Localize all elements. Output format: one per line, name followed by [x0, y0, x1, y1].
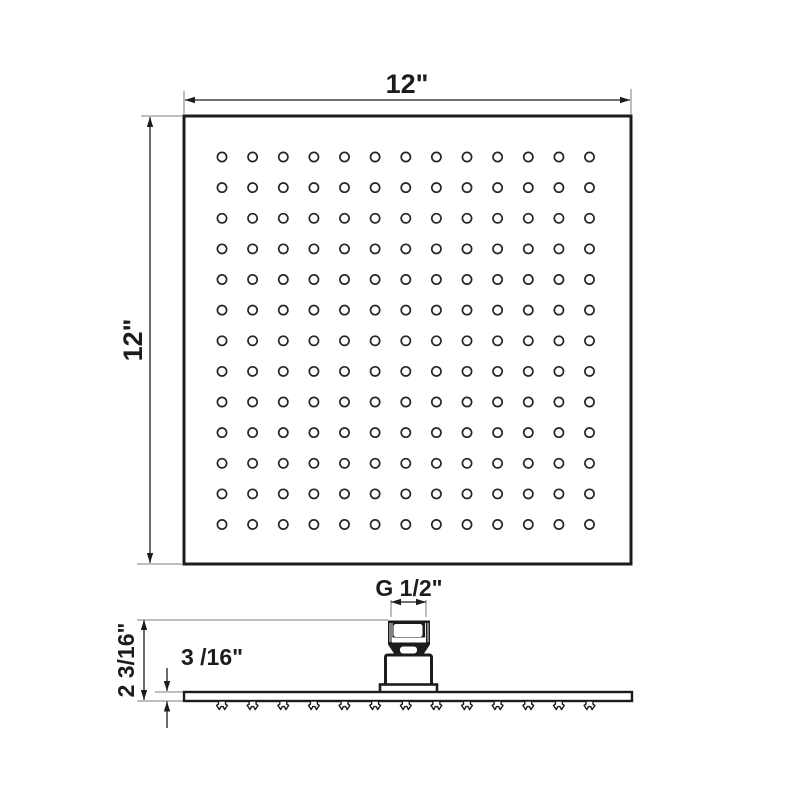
- swivel-lip: [400, 646, 418, 654]
- showerhead-plate: [184, 692, 632, 701]
- nozzle-hole: [554, 397, 563, 406]
- nozzle-hole: [340, 397, 349, 406]
- nozzle-hole: [279, 520, 288, 529]
- nozzle-hole: [371, 275, 380, 284]
- nut-top-face: [394, 624, 423, 637]
- nozzle-hole: [217, 397, 226, 406]
- nozzle: [217, 701, 228, 710]
- arrowhead-right: [620, 97, 630, 103]
- nozzle-hole: [401, 520, 410, 529]
- nozzle-hole: [432, 428, 441, 437]
- nozzle-hole: [279, 397, 288, 406]
- nozzle-hole: [248, 244, 257, 253]
- nozzle-hole: [554, 152, 563, 161]
- nozzle-hole: [585, 306, 594, 315]
- nozzle-hole: [217, 489, 226, 498]
- nozzle-hole: [401, 183, 410, 192]
- plate-thickness-label: 3 /16": [181, 644, 243, 670]
- nozzle-hole: [524, 275, 533, 284]
- arrowhead-down: [141, 690, 147, 700]
- nozzle-hole: [462, 459, 471, 468]
- nozzle-hole: [340, 367, 349, 376]
- nozzle-hole: [371, 367, 380, 376]
- nozzle-hole: [432, 244, 441, 253]
- nozzle-hole: [462, 367, 471, 376]
- nozzle-hole: [340, 214, 349, 223]
- nozzle-hole: [217, 152, 226, 161]
- nozzle-hole: [432, 520, 441, 529]
- nozzle-hole: [279, 428, 288, 437]
- dimension-thread: G 1/2": [375, 575, 442, 617]
- nozzle-hole: [401, 306, 410, 315]
- side-view: G 1/2" 2 3/16" 3 /16": [113, 575, 632, 728]
- nozzle-hole: [309, 183, 318, 192]
- nozzle: [339, 701, 350, 710]
- nozzle: [554, 701, 565, 710]
- nozzle-hole: [340, 183, 349, 192]
- nozzle-hole: [432, 397, 441, 406]
- nozzle-hole: [217, 306, 226, 315]
- nozzle-hole: [371, 489, 380, 498]
- nozzle-hole: [401, 397, 410, 406]
- nozzle-hole: [493, 214, 502, 223]
- nozzle-hole: [524, 336, 533, 345]
- nozzle-hole: [217, 428, 226, 437]
- nozzle-hole: [585, 214, 594, 223]
- nozzle-hole: [524, 520, 533, 529]
- nozzle-hole: [309, 520, 318, 529]
- nozzle-hole: [554, 428, 563, 437]
- nozzle-hole: [340, 428, 349, 437]
- nozzle-hole: [493, 152, 502, 161]
- nozzle-hole: [524, 306, 533, 315]
- dimension-width: 12": [184, 69, 631, 114]
- nozzle-hole: [371, 183, 380, 192]
- nozzle-hole: [432, 183, 441, 192]
- nozzle-hole: [585, 459, 594, 468]
- nozzle-hole: [524, 152, 533, 161]
- nozzle-hole: [309, 489, 318, 498]
- nozzle-hole: [554, 275, 563, 284]
- nozzle-hole: [340, 489, 349, 498]
- nozzle-hole: [585, 520, 594, 529]
- arrowhead-up: [164, 702, 170, 712]
- nozzle-hole: [524, 397, 533, 406]
- nozzle-hole: [340, 152, 349, 161]
- nozzle-hole: [432, 367, 441, 376]
- nozzle-hole: [554, 183, 563, 192]
- nozzle-hole: [462, 244, 471, 253]
- arrowhead-left: [185, 97, 195, 103]
- nozzle-hole: [524, 244, 533, 253]
- nozzle-hole: [248, 397, 257, 406]
- nozzle-hole: [248, 214, 257, 223]
- technical-drawing: 12" 12": [0, 0, 800, 800]
- nozzle: [584, 701, 595, 710]
- nozzle-hole: [493, 183, 502, 192]
- nozzle-hole: [248, 428, 257, 437]
- nozzle-hole: [493, 275, 502, 284]
- nozzle-hole: [309, 214, 318, 223]
- nozzle: [400, 701, 411, 710]
- nozzle-hole: [309, 306, 318, 315]
- nozzle-hole: [493, 306, 502, 315]
- nozzle-hole: [554, 336, 563, 345]
- arrowhead-up: [141, 620, 147, 630]
- nozzle-hole: [309, 397, 318, 406]
- nozzle-hole: [493, 244, 502, 253]
- nozzle-hole: [585, 152, 594, 161]
- nozzle-hole: [462, 214, 471, 223]
- nozzle-hole: [340, 306, 349, 315]
- nozzle-hole: [524, 428, 533, 437]
- nozzle-hole: [309, 459, 318, 468]
- nozzle-hole: [462, 306, 471, 315]
- nozzle: [523, 701, 534, 710]
- nozzle-hole: [401, 489, 410, 498]
- nozzle-hole: [493, 489, 502, 498]
- nozzle-hole: [248, 489, 257, 498]
- nozzle-hole: [248, 306, 257, 315]
- nozzle-hole: [217, 214, 226, 223]
- nozzle-hole: [279, 489, 288, 498]
- nozzle-hole: [585, 244, 594, 253]
- nozzle-hole: [554, 489, 563, 498]
- nozzle-hole: [248, 275, 257, 284]
- nozzle-hole: [371, 152, 380, 161]
- nozzle-hole: [217, 183, 226, 192]
- nozzle: [462, 701, 473, 710]
- nozzle: [492, 701, 503, 710]
- nozzle-hole: [248, 183, 257, 192]
- nozzle-hole: [462, 275, 471, 284]
- nozzle-hole: [371, 244, 380, 253]
- nozzle-hole: [493, 336, 502, 345]
- nozzle-hole: [524, 367, 533, 376]
- nozzle-hole: [401, 214, 410, 223]
- nozzle-hole: [401, 244, 410, 253]
- nozzle-hole: [585, 336, 594, 345]
- nut-lower-band: [392, 638, 426, 643]
- nozzle-hole: [217, 336, 226, 345]
- nozzle-hole: [217, 367, 226, 376]
- nozzle-hole: [462, 336, 471, 345]
- nozzle-hole: [248, 152, 257, 161]
- nozzle-hole: [309, 336, 318, 345]
- nozzle-hole: [309, 244, 318, 253]
- nozzle-hole: [585, 275, 594, 284]
- nozzle-hole: [554, 214, 563, 223]
- nozzle-hole: [462, 428, 471, 437]
- nozzle-hole: [309, 275, 318, 284]
- nozzle-hole: [371, 214, 380, 223]
- arrowhead-down: [164, 681, 170, 691]
- nozzle-hole: [279, 306, 288, 315]
- nozzle-hole: [217, 244, 226, 253]
- dimension-plate-thickness: 3 /16": [155, 644, 243, 728]
- nozzle-hole: [279, 459, 288, 468]
- nozzle-hole: [432, 459, 441, 468]
- nozzle-hole: [524, 459, 533, 468]
- nozzle-hole: [585, 367, 594, 376]
- nozzle-hole: [493, 459, 502, 468]
- nozzle-hole: [248, 520, 257, 529]
- nozzle-hole: [279, 244, 288, 253]
- nozzle-hole: [585, 489, 594, 498]
- nozzle-hole: [585, 397, 594, 406]
- nozzle-hole: [585, 428, 594, 437]
- nozzle-hole: [340, 244, 349, 253]
- nozzle-hole: [401, 428, 410, 437]
- nozzle-hole: [462, 489, 471, 498]
- nozzle-hole: [217, 520, 226, 529]
- nozzle: [370, 701, 381, 710]
- nozzle-hole: [371, 397, 380, 406]
- nozzle-hole: [462, 520, 471, 529]
- nozzle: [278, 701, 289, 710]
- nozzle-hole: [401, 459, 410, 468]
- dimension-height: 12": [118, 116, 182, 564]
- nozzle-hole: [340, 459, 349, 468]
- inlet-connector: [380, 621, 437, 694]
- nozzle-hole: [279, 275, 288, 284]
- nozzle-hole: [309, 367, 318, 376]
- nozzle-hole: [279, 336, 288, 345]
- nozzle-hole: [493, 520, 502, 529]
- nozzle-hole: [554, 306, 563, 315]
- nozzle-hole: [248, 459, 257, 468]
- overall-height-label: 2 3/16": [113, 623, 139, 698]
- nozzle-hole: [554, 367, 563, 376]
- nozzle-hole: [401, 336, 410, 345]
- nozzle-hole: [217, 275, 226, 284]
- nozzle-hole: [279, 152, 288, 161]
- nozzle-hole: [432, 489, 441, 498]
- nozzle-hole: [554, 520, 563, 529]
- nozzle-hole: [340, 336, 349, 345]
- nozzle-hole: [248, 336, 257, 345]
- nozzle-row: [217, 701, 595, 710]
- nozzle-hole: [554, 244, 563, 253]
- nozzle-hole: [493, 428, 502, 437]
- nozzle-hole: [401, 275, 410, 284]
- nozzle-hole: [340, 520, 349, 529]
- height-dimension-label: 12": [118, 319, 148, 362]
- nozzle: [309, 701, 320, 710]
- nozzle-hole: [493, 367, 502, 376]
- nozzle-hole: [524, 489, 533, 498]
- nozzle-hole: [462, 152, 471, 161]
- nozzle-hole: [432, 336, 441, 345]
- nozzle-hole: [493, 397, 502, 406]
- nozzle-hole: [279, 183, 288, 192]
- width-dimension-label: 12": [386, 69, 429, 99]
- nozzle-hole: [554, 459, 563, 468]
- nozzle-hole: [462, 397, 471, 406]
- nozzle-hole: [524, 214, 533, 223]
- nozzle-hole: [309, 428, 318, 437]
- nozzle-hole: [585, 183, 594, 192]
- nozzle-hole: [371, 428, 380, 437]
- nozzle-hole: [371, 459, 380, 468]
- nozzle-hole: [432, 214, 441, 223]
- nozzle-hole: [401, 152, 410, 161]
- arrowhead-up: [147, 117, 153, 127]
- thread-size-label: G 1/2": [375, 575, 442, 601]
- nozzle-hole: [309, 152, 318, 161]
- nozzle-hole: [432, 306, 441, 315]
- nozzle-hole: [217, 459, 226, 468]
- nozzle-hole: [401, 367, 410, 376]
- dimension-overall-height: 2 3/16": [113, 620, 388, 701]
- nozzle-hole: [340, 275, 349, 284]
- nozzle-hole: [279, 367, 288, 376]
- nozzle: [247, 701, 258, 710]
- nozzle-hole: [279, 214, 288, 223]
- nozzle: [431, 701, 442, 710]
- nozzle-hole: [371, 336, 380, 345]
- nozzle-hole: [432, 152, 441, 161]
- arrowhead-down: [147, 553, 153, 563]
- nozzle-hole: [248, 367, 257, 376]
- top-view: 12" 12": [118, 69, 631, 564]
- connector-body: [386, 655, 432, 685]
- nozzle-hole: [432, 275, 441, 284]
- nozzle-hole: [371, 306, 380, 315]
- nozzle-hole: [462, 183, 471, 192]
- nozzle-hole: [524, 183, 533, 192]
- nozzle-hole: [371, 520, 380, 529]
